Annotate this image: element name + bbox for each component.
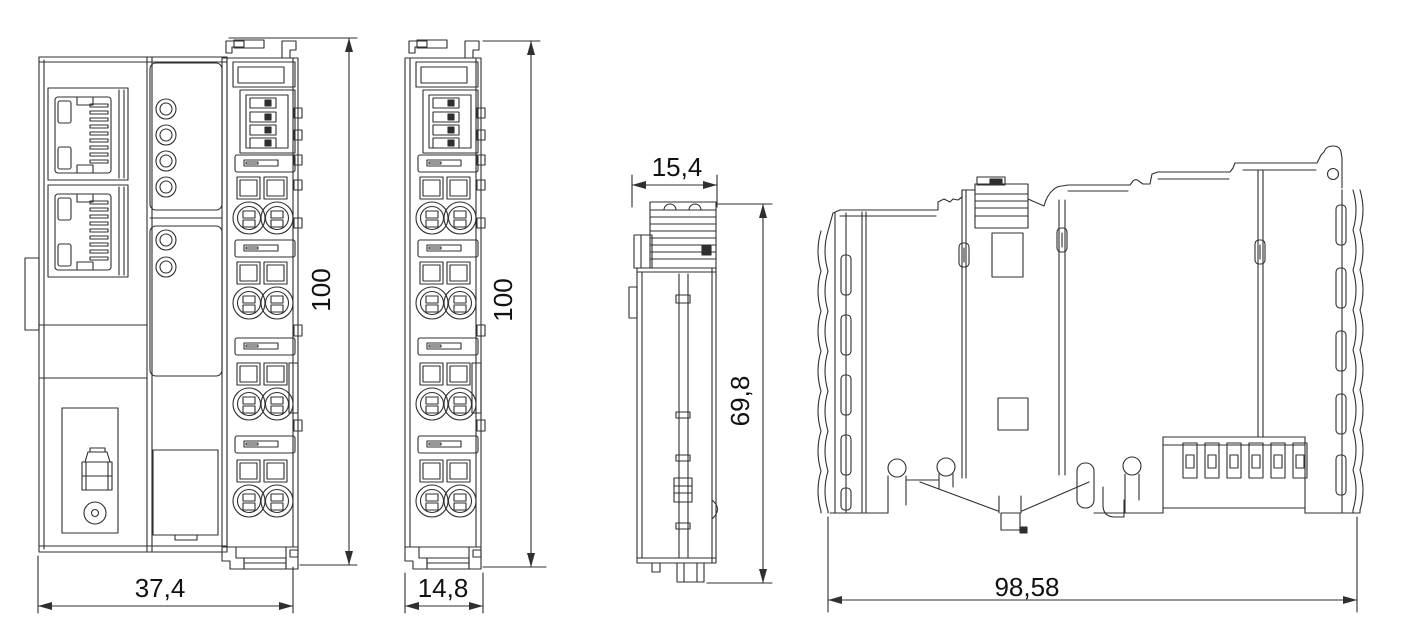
latch-bump-shape [712,500,718,519]
scalloped-edge-left-outer [818,231,821,513]
view-module-side [818,146,1363,533]
led-panel-lower [150,226,222,376]
scalloped-edge-right-inner [1353,190,1356,513]
foot-shape [677,563,704,582]
dim-label-side-height: 69,8 [725,376,755,427]
view-coupler-front [25,40,302,569]
din-rail-profile [830,457,1348,533]
power-panel [62,408,118,533]
top-profile-left [828,190,975,231]
top-profile-right [1028,146,1342,206]
dim-label-coupler-width: 37,4 [135,573,186,603]
ethernet-port-2 [48,185,128,277]
dimension-module-width [828,517,1357,612]
view-terminal-front [405,40,485,569]
label-field-shape [153,450,218,535]
led-panel-upper [150,63,222,210]
dim-label-terminal-height: 100 [488,278,518,321]
technical-drawing: 100 37,4 100 14,8 15,4 69,8 98,58 [0,0,1404,641]
contact-block-shape [650,202,716,268]
fixing-hole [1328,169,1339,180]
dim-label-terminal-width: 14,8 [418,573,469,603]
scalloped-edge-right-outer [1360,190,1363,513]
attached-terminal [222,40,302,569]
mounting-latch-shape [975,177,1028,228]
view-terminal-side [629,202,718,582]
dimension-drawing-canvas: 100 37,4 100 14,8 15,4 69,8 98,58 [0,0,1404,641]
side-tab-shape [25,258,39,330]
dim-label-side-top-width: 15,4 [652,152,703,182]
contact-comb-shape [1163,437,1307,513]
ethernet-port-1 [48,88,128,180]
dim-label-module-width: 98,58 [994,572,1059,602]
dim-label-coupler-height: 100 [306,268,336,311]
power-jack-shape [84,502,106,524]
